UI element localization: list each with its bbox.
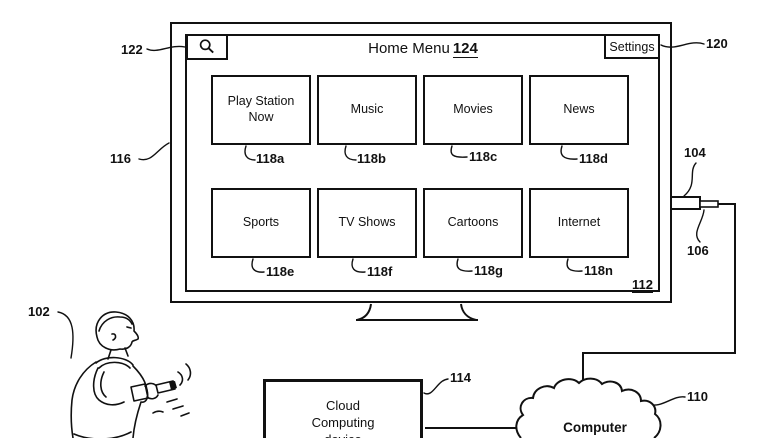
tile-label: Internet xyxy=(558,215,600,231)
ref-118d: 118d xyxy=(579,151,608,166)
ref-118n: 118n xyxy=(584,263,613,278)
tile-cartoons[interactable]: Cartoons xyxy=(423,188,523,258)
settings-label: Settings xyxy=(609,40,654,54)
ref-116: 116 xyxy=(110,151,131,166)
tile-music[interactable]: Music xyxy=(317,75,417,145)
tile-sports[interactable]: Sports xyxy=(211,188,311,258)
computer-network-label: Computer xyxy=(540,420,650,435)
tile-label: Play Station Now xyxy=(215,94,307,125)
motion-arcs xyxy=(178,364,190,385)
menu-row-2: Sports TV Shows Cartoons Internet xyxy=(211,188,629,258)
tile-tv-shows[interactable]: TV Shows xyxy=(317,188,417,258)
ref-120: 120 xyxy=(706,36,728,51)
cloud-computing-box: Cloud Computing device xyxy=(263,379,423,438)
tile-internet[interactable]: Internet xyxy=(529,188,629,258)
ref-118a: 118a xyxy=(256,151,284,166)
ref-118e: 118e xyxy=(266,264,294,279)
tile-movies[interactable]: Movies xyxy=(423,75,523,145)
cloud-box-line-3: device xyxy=(266,431,420,438)
ref-102: 102 xyxy=(28,304,50,319)
ref-110: 110 xyxy=(687,389,708,404)
leader-102 xyxy=(58,312,73,358)
leader-110 xyxy=(649,397,685,405)
ref-114: 114 xyxy=(450,370,471,385)
tile-playstation-now[interactable]: Play Station Now xyxy=(211,75,311,145)
ref-118f: 118f xyxy=(367,264,392,279)
menu-row-1: Play Station Now Music Movies News xyxy=(211,75,629,145)
settings-button[interactable]: Settings xyxy=(604,34,660,59)
cloud-box-line-2: Computing xyxy=(266,414,420,431)
person-with-remote-icon xyxy=(71,312,190,438)
tile-label: Movies xyxy=(453,102,493,118)
cable-plug xyxy=(700,201,718,207)
ref-118b: 118b xyxy=(357,151,386,166)
ref-122: 122 xyxy=(121,42,143,57)
leader-116 xyxy=(139,143,169,160)
ref-112: 112 xyxy=(632,277,653,293)
remote-control-icon xyxy=(156,381,175,393)
leader-106 xyxy=(697,210,704,242)
tile-label: News xyxy=(563,102,594,118)
patent-figure: Home Menu124 Settings Play Station Now M… xyxy=(0,0,780,438)
leader-114 xyxy=(424,379,448,394)
home-menu-title-text: Home Menu xyxy=(368,40,450,57)
tile-label: Sports xyxy=(243,215,279,231)
ref-124: 124 xyxy=(453,40,478,58)
ref-106: 106 xyxy=(687,243,709,258)
tile-label: Cartoons xyxy=(448,215,499,231)
tile-label: TV Shows xyxy=(339,215,396,231)
cloud-box-line-1: Cloud xyxy=(266,397,420,414)
leader-104 xyxy=(684,163,696,196)
tile-news[interactable]: News xyxy=(529,75,629,145)
ref-118c: 118c xyxy=(469,149,497,164)
home-menu-title: Home Menu124 xyxy=(186,40,660,57)
tv-port xyxy=(672,197,700,209)
ref-118g: 118g xyxy=(474,263,503,278)
tile-label: Music xyxy=(351,102,384,118)
ref-104: 104 xyxy=(684,145,706,160)
tv-stand xyxy=(356,304,478,320)
motion-dashes xyxy=(153,399,189,416)
